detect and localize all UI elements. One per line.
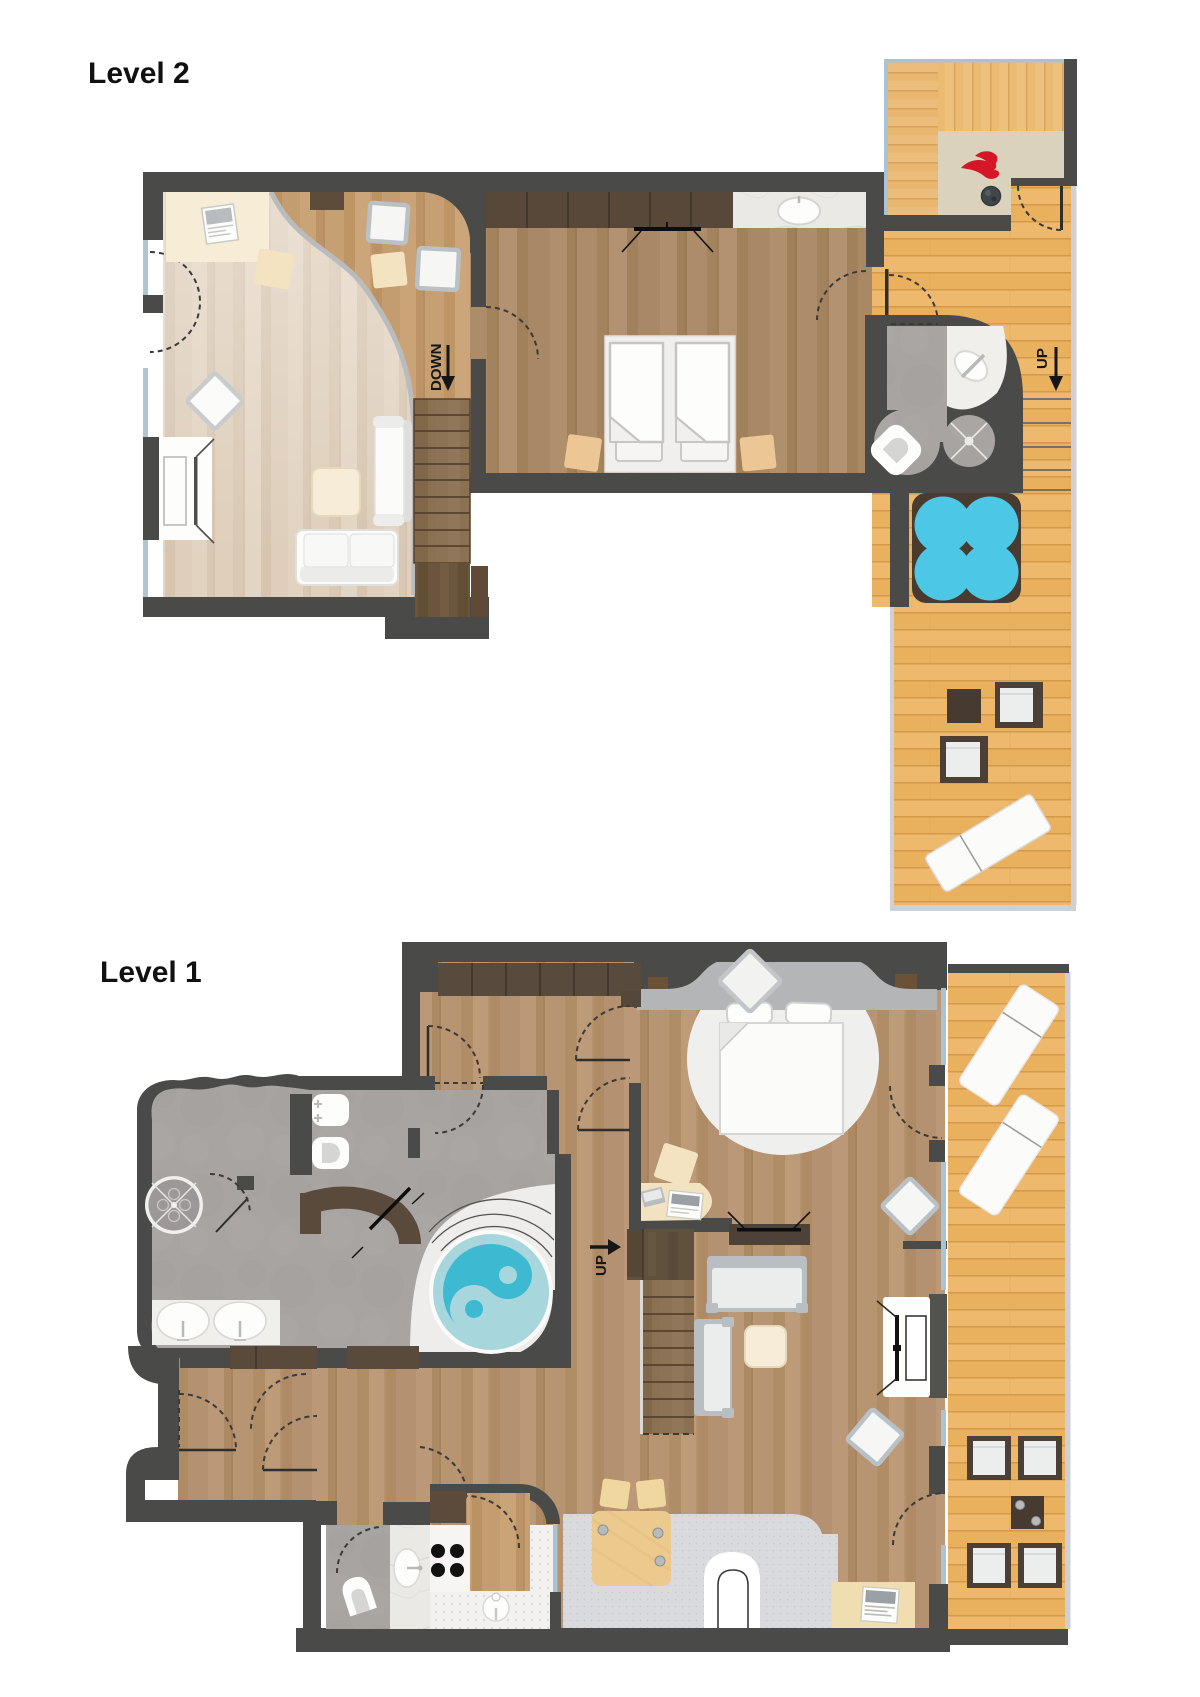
svg-text:Level 1: Level 1 xyxy=(100,956,202,989)
svg-text:UP: UP xyxy=(593,1255,610,1276)
svg-text:Level 2: Level 2 xyxy=(88,57,190,90)
svg-text:DOWN: DOWN xyxy=(428,344,445,392)
svg-text:UP: UP xyxy=(1034,348,1051,369)
